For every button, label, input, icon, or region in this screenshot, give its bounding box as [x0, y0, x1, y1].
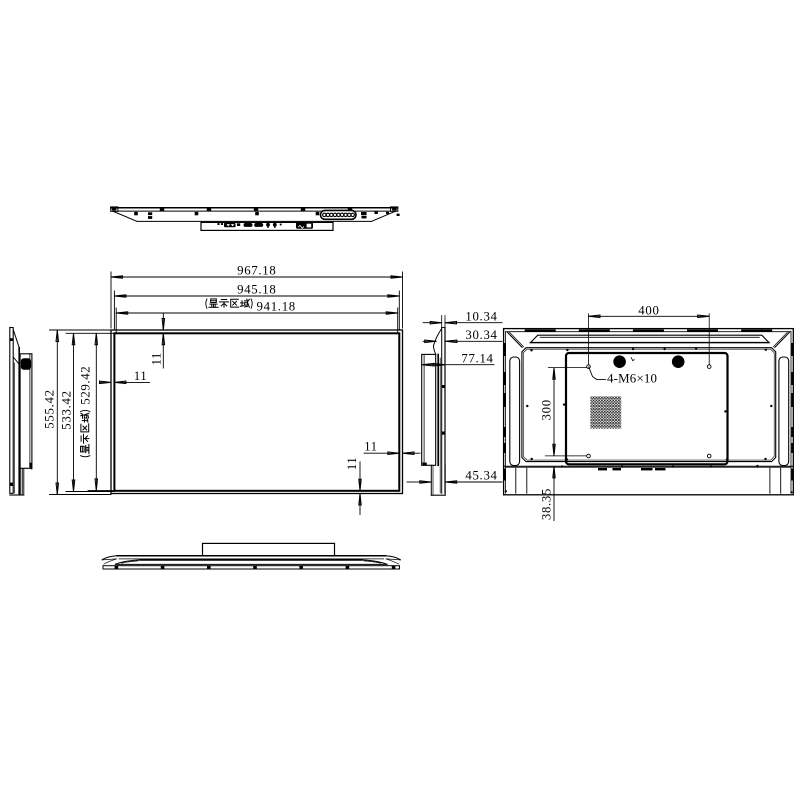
svg-text:555.42: 555.42	[42, 389, 56, 428]
svg-text:11: 11	[134, 369, 147, 383]
svg-text:967.18: 967.18	[237, 263, 276, 277]
svg-text:45.34: 45.34	[465, 468, 497, 482]
svg-text:400: 400	[638, 303, 659, 317]
svg-text:11: 11	[364, 439, 377, 453]
svg-text:529.42: 529.42	[79, 366, 93, 405]
svg-text:941.18: 941.18	[257, 299, 296, 313]
svg-text:77.14: 77.14	[461, 351, 493, 365]
svg-text:533.42: 533.42	[59, 390, 73, 429]
svg-text:38.35: 38.35	[539, 488, 553, 520]
svg-text:11: 11	[345, 457, 359, 470]
svg-text:300: 300	[540, 399, 554, 420]
svg-text:10.34: 10.34	[465, 309, 497, 323]
svg-text:4-M6×10: 4-M6×10	[607, 371, 657, 385]
svg-text:11: 11	[150, 352, 164, 365]
svg-text:30.34: 30.34	[465, 328, 497, 342]
svg-text:945.18: 945.18	[237, 282, 276, 296]
